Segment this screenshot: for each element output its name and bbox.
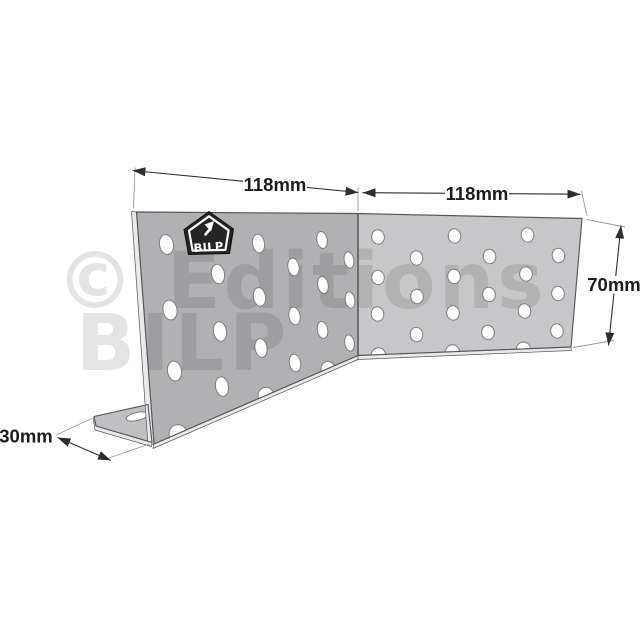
dimension-label-plate-left-length: 118mm (244, 174, 307, 195)
dimension-height: 70mm (573, 220, 640, 348)
bracket-diagram-svg: © Editions BILP (0, 0, 640, 640)
product-diagram: © Editions BILP (0, 0, 640, 640)
extension-line (573, 341, 614, 348)
badge-label: BILP (193, 239, 224, 255)
extension-line (582, 191, 588, 216)
dimension-line (58, 438, 112, 461)
extension-line (587, 220, 625, 228)
extension-line (56, 418, 94, 436)
dimension-label-plate-right-length: 118mm (446, 183, 509, 204)
dimension-label-foot-depth: 30mm (0, 426, 53, 447)
extension-line (108, 444, 150, 459)
extension-line (134, 168, 136, 209)
dimension-label-height: 70mm (587, 274, 640, 295)
dimension-plate-left-length: 118mm (133, 168, 359, 212)
dimension-plate-right-length: 118mm (363, 183, 588, 216)
